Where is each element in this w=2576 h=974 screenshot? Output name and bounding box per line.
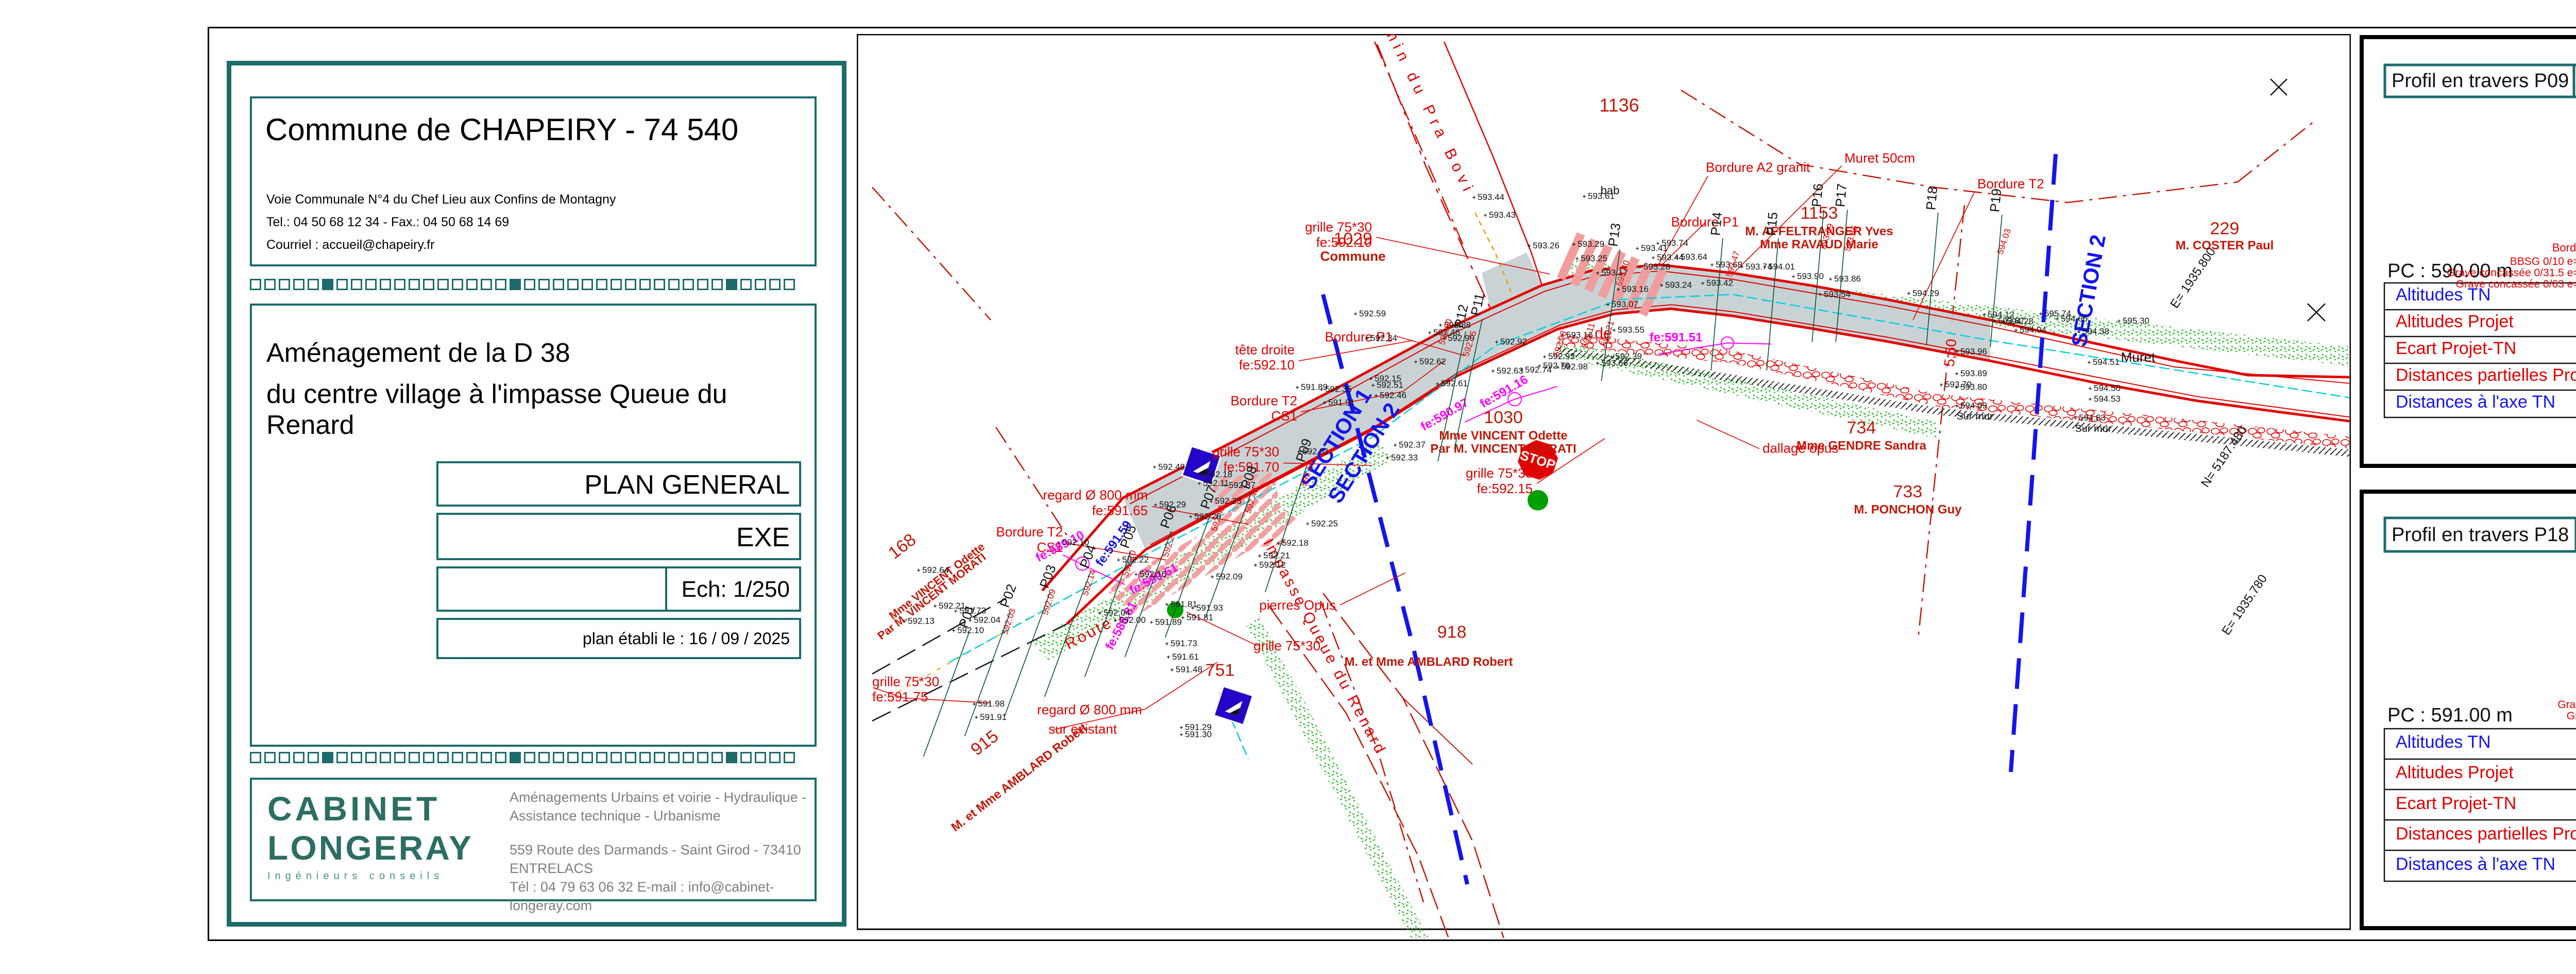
table-row-label: Ecart Projet-TN	[2396, 339, 2516, 358]
survey-point: 592.12	[1259, 560, 1286, 570]
separator-square	[683, 279, 694, 290]
separator-square	[639, 279, 651, 290]
survey-point: 594.09	[1960, 400, 1987, 410]
plan-label: fe:591.75	[872, 690, 928, 704]
survey-point: 592.49	[1158, 462, 1185, 472]
phase-box: EXE	[436, 513, 801, 560]
survey-point: 592.37	[1399, 440, 1426, 450]
scale-empty-cell	[438, 568, 667, 610]
profile-marker-label: P16	[1809, 183, 1826, 208]
survey-point: 593.42	[1706, 278, 1733, 288]
survey-point: 592.09	[1216, 572, 1243, 581]
project-line2: du centre village à l'impasse Queue du R…	[266, 379, 815, 441]
table-row-label: Altitudes TN	[2396, 732, 2491, 752]
survey-point: 593.29	[1578, 239, 1604, 249]
plan-label: grille 75*30	[1253, 639, 1320, 653]
plan-label: fe:592.15	[1477, 482, 1533, 496]
separator-square	[510, 752, 521, 763]
plan-label: 733	[1893, 482, 1923, 501]
survey-point: 594.83	[2079, 413, 2106, 423]
separator-square	[740, 279, 752, 290]
survey-point: 593.74	[1662, 238, 1688, 248]
survey-point: 591.81	[1187, 613, 1213, 623]
survey-point: 593.25	[1581, 254, 1607, 263]
survey-point: 592.21	[1263, 551, 1290, 561]
firm-address-1: 559 Route des Darmands - Saint Girod - 7…	[510, 841, 815, 859]
table-row-label: Altitudes Projet	[2396, 763, 2514, 782]
survey-point: 592.00	[1119, 615, 1146, 625]
separator-square	[769, 279, 781, 290]
survey-point: 592.46	[1380, 391, 1406, 400]
separator-square	[293, 279, 304, 290]
separator-square	[336, 752, 348, 763]
plan-label: fe:591.51	[1650, 331, 1703, 345]
separator-square	[351, 752, 362, 763]
profile-annotation: BBSG 0/10 e=0.06m	[2510, 256, 2576, 267]
separator-square	[755, 279, 766, 290]
survey-point: 593.44	[1478, 192, 1504, 202]
separator-square	[380, 752, 391, 763]
survey-point: 592.64	[922, 565, 949, 575]
plan-label: M. et Mme AMBLARD Robert	[1345, 655, 1513, 669]
plan-label: Bordure T2	[1977, 177, 2044, 191]
survey-point: 594.01	[1768, 262, 1795, 272]
profile-marker-label: P17	[1833, 183, 1850, 208]
separator-square	[466, 279, 478, 290]
plan-label: M. PONCHON Guy	[1854, 503, 1962, 517]
survey-point: 592.23	[1215, 496, 1242, 506]
separator-square	[481, 752, 492, 763]
separator-square	[726, 279, 737, 290]
survey-point: 593.96	[1960, 346, 1987, 356]
separator-square	[495, 752, 506, 763]
profile-annotation: Grave concassée 0/31.5 e=0.05m	[2557, 699, 2576, 711]
panel-title-box: Profil en travers P09 Ech: 1/100	[2385, 65, 2576, 97]
separator-square	[322, 752, 333, 763]
separator-squares-top	[250, 279, 817, 294]
table-row-label: Distances à l'axe TN	[2396, 392, 2555, 412]
survey-point: 592.59	[1359, 309, 1386, 318]
panel-title-box: Profil en travers P18 Ech: 1/100	[2385, 518, 2576, 551]
doc-title-box: PLAN GENERAL	[436, 461, 801, 507]
table-row-label: Distances à l'axe TN	[2396, 854, 2555, 874]
survey-point: 594.04	[2020, 325, 2046, 335]
survey-point: 591.89	[1301, 382, 1328, 392]
plan-label: pierres Opus	[1259, 598, 1336, 613]
separator-square	[596, 279, 607, 290]
survey-point: 593.89	[1960, 368, 1987, 378]
separator-square	[639, 752, 651, 763]
survey-point: 593.86	[1834, 274, 1861, 284]
plan-label: Sur mur	[1956, 411, 1993, 422]
survey-point: 593.28	[1643, 262, 1670, 272]
profile-annotation: Bordure P1	[2552, 241, 2576, 254]
plan-label: Muret 50cm	[1844, 152, 1915, 166]
plan-label: fe:592.10	[1316, 236, 1372, 250]
survey-point: 594.51	[2093, 357, 2120, 367]
firm-address-2: ENTRELACS	[510, 859, 815, 878]
survey-point: 593.43	[1489, 210, 1516, 220]
plan-label: tête droite	[1235, 343, 1295, 357]
project-line1: Aménagement de la D 38	[266, 338, 570, 368]
profile-marker-label: P15	[1764, 211, 1781, 236]
separator-square	[711, 279, 723, 290]
plan-label: 751	[1206, 661, 1235, 680]
scale: Ech: 1/250	[682, 577, 790, 602]
separator-square	[625, 752, 636, 763]
separator-square	[538, 279, 550, 290]
table-row-label: Distances partielles Projet	[2396, 824, 2576, 844]
separator-square	[351, 279, 362, 290]
separator-square	[423, 752, 434, 763]
separator-square	[784, 752, 795, 763]
survey-point: 591.48	[1176, 665, 1202, 675]
separator-square	[250, 279, 261, 290]
separator-square	[452, 279, 463, 290]
plan-label: Muret	[2121, 350, 2155, 365]
profile-marker-label: P19	[1988, 188, 2004, 213]
separator-square	[264, 279, 276, 290]
survey-point: 592.16	[1140, 569, 1166, 579]
plan-label: 1136	[1599, 95, 1639, 116]
profile-title: Profil en travers P18	[2392, 524, 2569, 546]
separator-square	[524, 279, 535, 290]
survey-point: 593.61	[1588, 191, 1615, 201]
separator-square	[668, 279, 680, 290]
separator-square	[423, 279, 434, 290]
plan-label: Bordure A2 granit	[1706, 161, 1810, 175]
separator-square	[380, 279, 391, 290]
separator-square	[308, 752, 319, 763]
scale-box: Ech: 1/250	[436, 566, 801, 612]
survey-point: 593.55	[1618, 325, 1645, 335]
commune-email: Courriel : accueil@chapeiry.fr	[266, 238, 434, 253]
survey-point: 593.64	[1681, 252, 1707, 262]
plan-label: fe:591.65	[1092, 504, 1148, 518]
separator-square	[394, 279, 405, 290]
separator-square	[596, 752, 607, 763]
firm-services-2: Assistance technique - Urbanisme	[510, 807, 806, 825]
survey-point: 592.51	[1377, 380, 1403, 390]
survey-point: 593.24	[1665, 280, 1692, 290]
separator-square	[567, 752, 579, 763]
survey-point: 592.13	[908, 616, 935, 626]
profile-panel-p09: Profil en travers P09 Ech: 1/100	[2360, 35, 2576, 468]
separator-square	[697, 752, 708, 763]
survey-point: 595.30	[2123, 316, 2149, 326]
survey-point: 593.07	[1612, 299, 1638, 309]
plan-label: grille 75*30	[872, 675, 939, 690]
plan-label: 229	[2210, 219, 2240, 239]
survey-point: 592.92	[1500, 337, 1527, 347]
profile-panel-p18: Profil en travers P18 Ech: 1/100	[2360, 490, 2576, 930]
plan-label: 1030	[1484, 408, 1523, 427]
commune-title: Commune de CHAPEIRY - 74 540	[265, 112, 738, 147]
survey-point: 592.04	[974, 615, 1001, 625]
plan-label: dallage opus	[1762, 442, 1838, 456]
survey-point: 591.93	[1196, 603, 1223, 613]
survey-point: 594.66	[2061, 314, 2088, 324]
plan-label: grille 75*30	[1212, 445, 1279, 460]
firm-contact: Tél : 04 79 63 06 32 E-mail : info@cabin…	[510, 878, 815, 915]
separator-square	[409, 279, 420, 290]
title-block: Commune de CHAPEIRY - 74 540 Voie Commun…	[227, 61, 846, 927]
survey-point: 593.80	[1960, 382, 1987, 392]
survey-point: 591.73	[1171, 639, 1197, 648]
separator-square	[308, 279, 319, 290]
separator-square	[452, 752, 463, 763]
separator-square	[365, 752, 377, 763]
survey-point: 592.98	[1561, 362, 1588, 372]
separator-square	[611, 752, 622, 763]
separator-square	[279, 279, 290, 290]
survey-point: 592.18	[1282, 538, 1309, 548]
survey-point: 593.54	[1824, 289, 1851, 299]
separator-square	[711, 752, 723, 763]
separator-square	[466, 752, 478, 763]
date-box: plan établi le : 16 / 09 / 2025	[436, 618, 801, 659]
separator-square	[654, 279, 665, 290]
plan-label: Commune	[1320, 249, 1385, 264]
survey-point: 591.98	[978, 699, 1005, 709]
phase: EXE	[736, 522, 790, 553]
plan-label: regard Ø 800 mm	[1037, 703, 1142, 717]
profile-title: Profil en travers P09	[2392, 70, 2569, 92]
profile-annotation: Grave concassée 0/63 e=0.50m	[2456, 278, 2576, 290]
separator-square	[582, 752, 593, 763]
table-row-label: Altitudes Projet	[2396, 312, 2514, 331]
separator-square	[524, 752, 535, 763]
survey-point: 593.16	[1622, 284, 1649, 294]
separator-square	[697, 279, 708, 290]
survey-point: 593.26	[1533, 241, 1560, 250]
plan-label: Bordure T2	[996, 525, 1063, 540]
firm-logo: CABINET LONGERAY Ingénieurs conseils	[267, 789, 489, 882]
survey-point: 591.89	[1155, 617, 1182, 627]
separator-square	[553, 279, 564, 290]
survey-point: 593.90	[1797, 272, 1824, 281]
survey-point: 593.44	[1657, 253, 1684, 262]
logo-line2: LONGERAY	[267, 828, 489, 867]
separator-square	[510, 279, 521, 290]
separator-square	[668, 752, 680, 763]
survey-point: 594.53	[2094, 394, 2121, 404]
survey-point: 592.63	[1497, 366, 1523, 376]
separator-square	[264, 752, 276, 763]
separator-square	[437, 279, 449, 290]
plan-label: grille 75*30	[1305, 221, 1372, 235]
logo-line3: Ingénieurs conseils	[267, 870, 489, 882]
plan-label: Sur mur	[2075, 423, 2111, 434]
separator-square	[409, 752, 420, 763]
separator-square	[740, 752, 752, 763]
plan-frame	[857, 35, 2350, 929]
doc-title: PLAN GENERAL	[584, 469, 790, 500]
profile-annotation: Grave concassée 0/63 e=0.50m	[2567, 710, 2576, 722]
profile-pc: PC : 591.00 m	[2387, 704, 2513, 726]
survey-point: 594.38	[2082, 327, 2109, 337]
survey-point: 591.61	[1172, 652, 1199, 662]
commune-telfax: Tel.: 04 50 68 12 34 - Fax.: 04 50 68 14…	[266, 215, 509, 230]
survey-point: 592.62	[1419, 357, 1446, 366]
survey-point: 591.91	[1328, 397, 1355, 407]
survey-point: 591.30	[1185, 730, 1212, 740]
commune-box: Commune de CHAPEIRY - 74 540 Voie Commun…	[250, 96, 817, 266]
separator-square	[365, 279, 377, 290]
separator-square	[769, 752, 781, 763]
separator-square	[567, 279, 579, 290]
plan-label: 734	[1847, 418, 1876, 438]
plan-label: fe:592.10	[1239, 358, 1295, 373]
separator-square	[553, 752, 564, 763]
commune-address: Voie Communale N°4 du Chef Lieu aux Conf…	[266, 192, 616, 207]
plan-label: 918	[1437, 622, 1467, 642]
separator-squares-bottom	[250, 752, 817, 767]
plan-label: regard Ø 800 mm	[1043, 489, 1148, 503]
plan-label: Par M. VINCENT MORATI	[1430, 442, 1576, 456]
profile-marker-label: P18	[1924, 186, 1940, 211]
separator-square	[322, 279, 333, 290]
separator-square	[611, 279, 622, 290]
separator-square	[726, 752, 737, 763]
separator-square	[437, 752, 449, 763]
separator-square	[538, 752, 550, 763]
survey-point: 593.66	[1601, 358, 1628, 368]
separator-square	[654, 752, 665, 763]
survey-point: 592.34	[1370, 333, 1397, 343]
profile-marker-label: P14	[1708, 211, 1725, 236]
survey-point: 591.81	[1171, 599, 1197, 609]
survey-point: 592.35	[1325, 384, 1352, 394]
separator-square	[755, 752, 766, 763]
survey-point: 594.29	[1912, 288, 1939, 298]
separator-square	[394, 752, 405, 763]
table-row-label: Distances partielles Projet	[2396, 365, 2576, 385]
survey-point: 591.91	[980, 712, 1007, 722]
plan-label: Bordure P1	[1671, 215, 1739, 230]
separator-square	[683, 752, 694, 763]
plan-label: M. COSTER Paul	[2176, 239, 2274, 253]
separator-square	[495, 279, 506, 290]
logo-line1: CABINET	[267, 789, 489, 828]
plan-label: grille 75*30	[1466, 466, 1533, 481]
firm-services-1: Aménagements Urbains et voirie - Hydraul…	[510, 788, 806, 807]
separator-square	[293, 752, 304, 763]
firm-box: CABINET LONGERAY Ingénieurs conseils Amé…	[250, 778, 817, 901]
plan-general: STOP Chemin du Pra BoviIm	[857, 34, 2351, 938]
survey-point: 592.33	[1391, 453, 1418, 463]
separator-square	[279, 752, 290, 763]
separator-square	[336, 279, 348, 290]
plan-label: sur existant	[1048, 723, 1117, 737]
separator-square	[481, 279, 492, 290]
table-row-label: Ecart Projet-TN	[2396, 794, 2516, 813]
date-line: plan établi le : 16 / 09 / 2025	[583, 629, 790, 648]
survey-point: 592.25	[1311, 518, 1338, 528]
separator-square	[784, 279, 795, 290]
profile-annotation: Grave concassée 0/31.5 e=0.05m	[2447, 267, 2576, 279]
separator-square	[625, 279, 636, 290]
plan-label: Bordure T2	[1230, 394, 1297, 409]
plan-label: CS1	[1271, 409, 1297, 424]
separator-square	[582, 279, 593, 290]
survey-point: 594.50	[2094, 383, 2121, 393]
separator-square	[250, 752, 261, 763]
